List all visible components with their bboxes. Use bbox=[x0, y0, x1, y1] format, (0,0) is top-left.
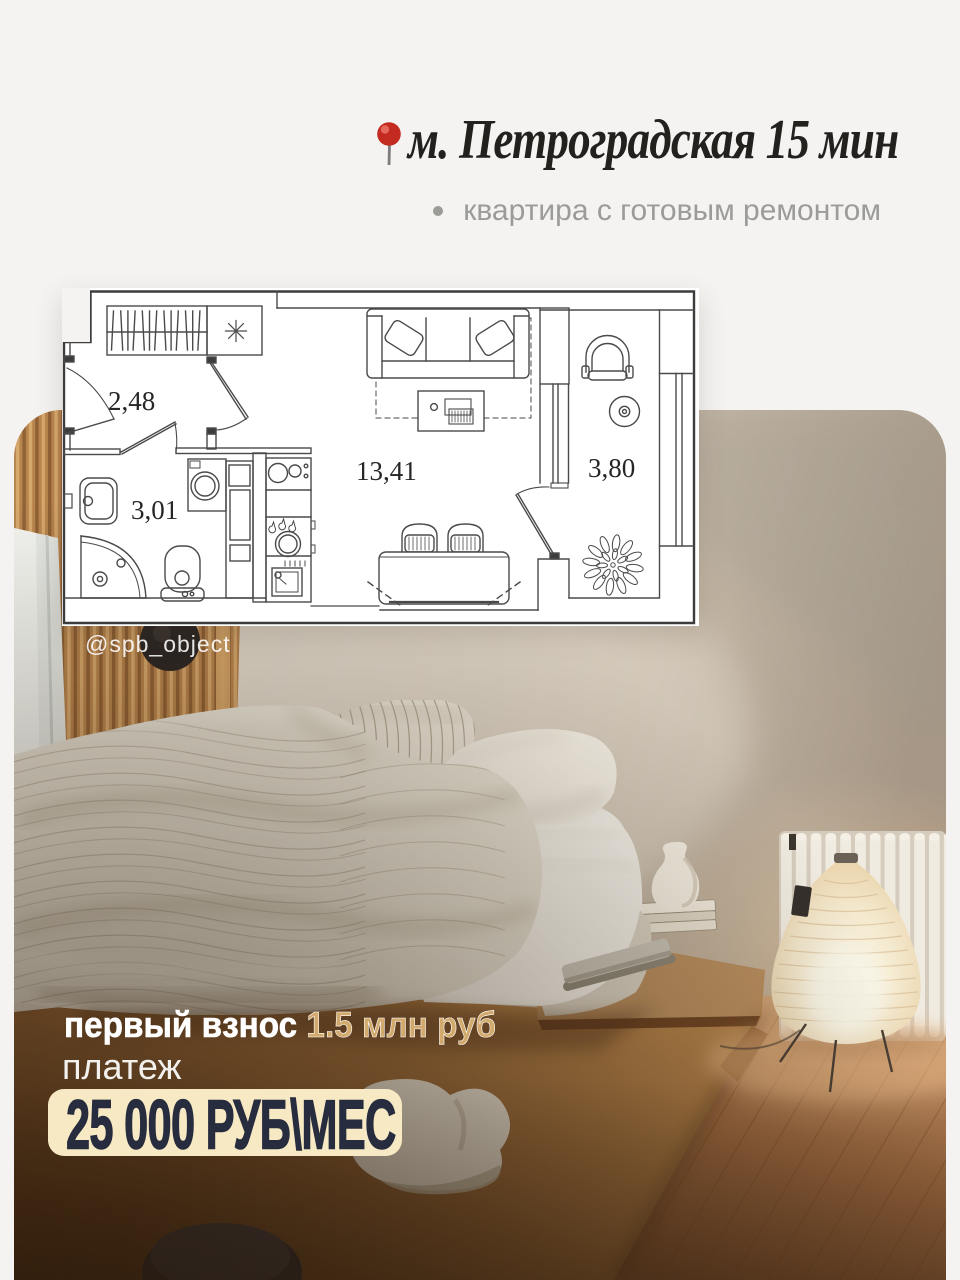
svg-text:3,80: 3,80 bbox=[588, 453, 635, 483]
svg-text:13,41: 13,41 bbox=[356, 456, 417, 486]
svg-text:3,01: 3,01 bbox=[131, 495, 178, 525]
svg-text:2,48: 2,48 bbox=[108, 386, 155, 416]
